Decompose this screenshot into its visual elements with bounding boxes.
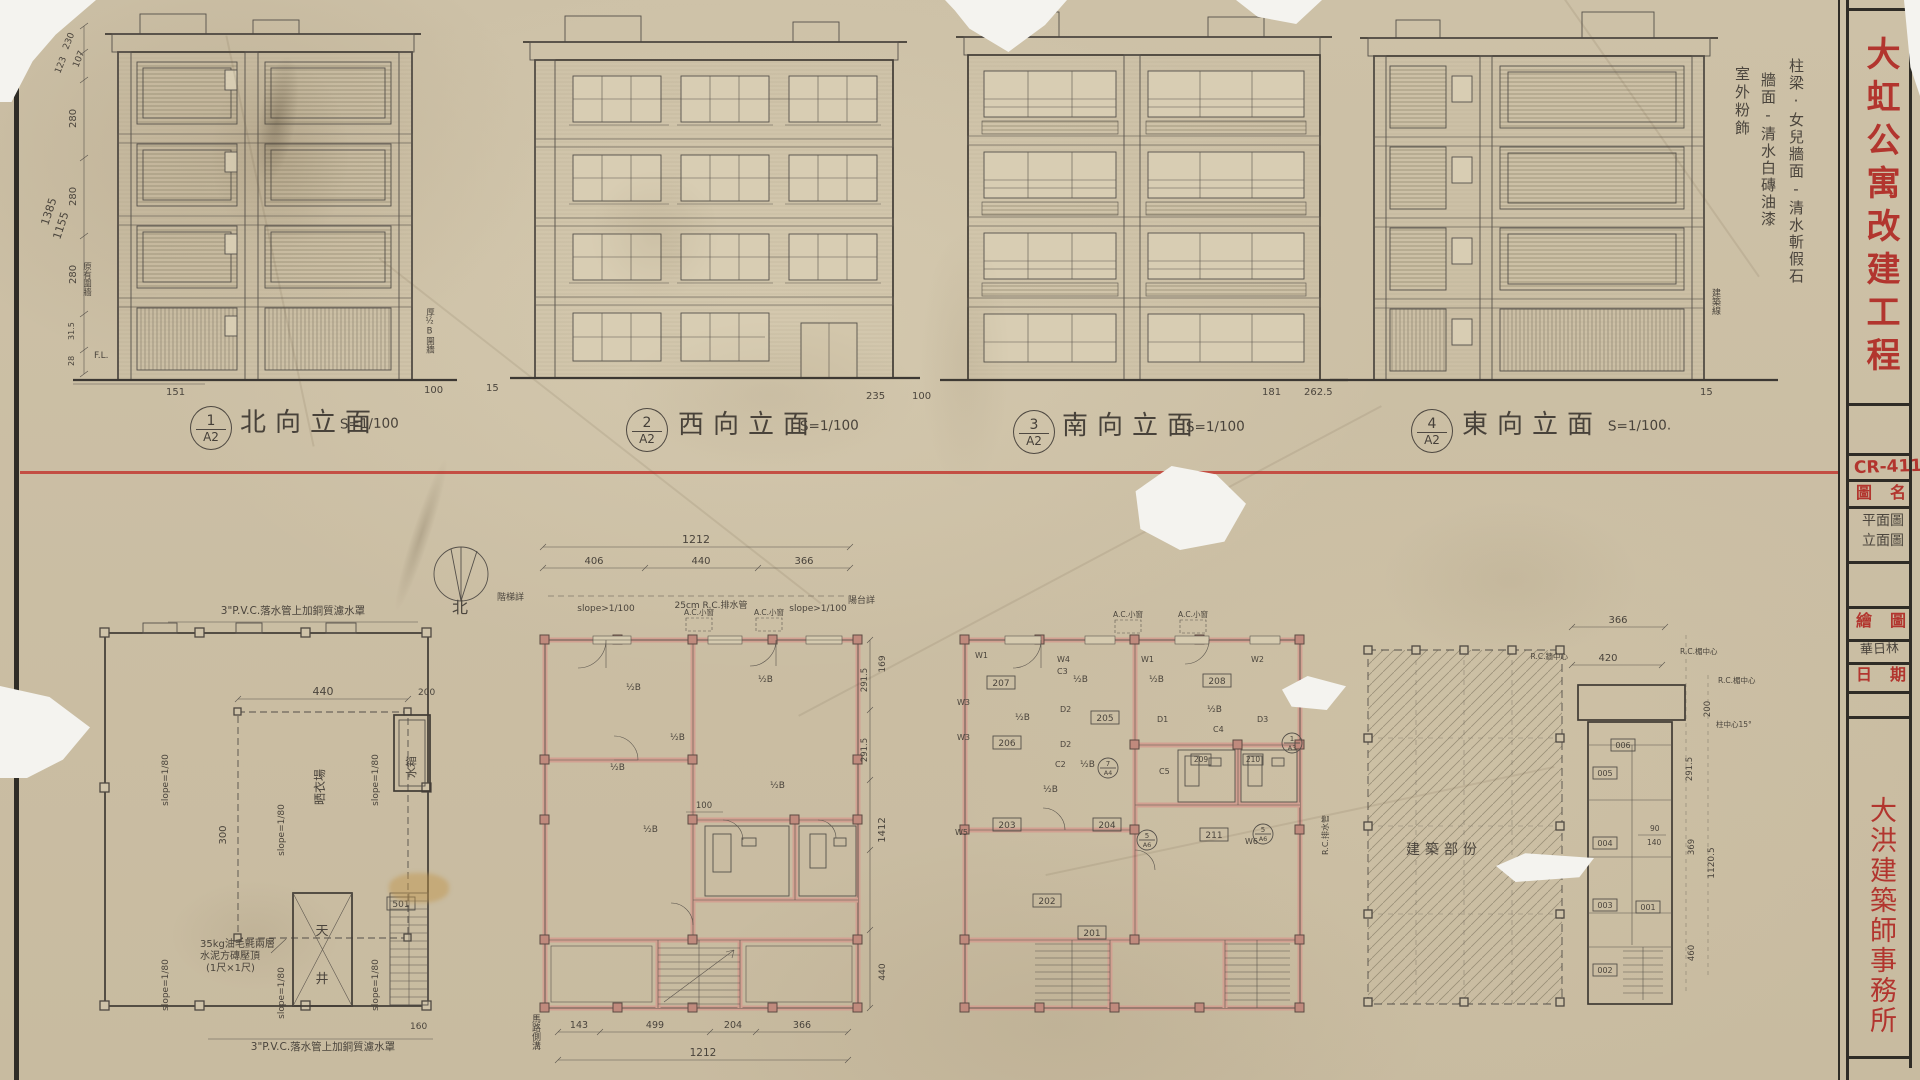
drying-area-label: 晒衣場 <box>312 769 327 805</box>
elevation-scale-east: S=1/100. <box>1608 419 1671 434</box>
slope-note-2: slope=1/80 <box>277 804 287 856</box>
fl-mark: F.L. <box>94 352 108 361</box>
elevation-title-south: 南向立面 <box>1062 413 1202 439</box>
ref-number: 4 <box>1428 417 1437 431</box>
room-004: 004 <box>1597 839 1612 848</box>
field-date: 日期 <box>1856 667 1920 683</box>
dim-15-b: 15 <box>1700 388 1713 398</box>
finish-note-wall: 牆面-清水白磚油漆 <box>1760 72 1775 272</box>
dim-235: 235 <box>866 392 885 402</box>
title-block-right-border <box>1909 8 1912 1068</box>
field-drawing-name: 圖名 <box>1856 485 1920 501</box>
mark-w6: W6 <box>1245 837 1258 846</box>
ground-plan-drawing: 366 420 R.C.牆中心 R.C.楣中心 R.C.楣中心 柱中心15° 2… <box>1350 595 1770 1075</box>
room-209: 209 <box>1194 755 1209 764</box>
lightwell-label-a: 天 <box>315 924 328 939</box>
half-brick-c6: ½B <box>1043 785 1058 795</box>
ref-1-sheet: A3 <box>1288 744 1297 752</box>
elevation-ref-4: 4 A2 <box>1411 409 1453 453</box>
mark-w3b: W3 <box>957 733 970 742</box>
room-206: 206 <box>998 739 1015 749</box>
dim-230: 230 <box>62 31 78 51</box>
dim-151: 151 <box>166 388 185 398</box>
room-210: 210 <box>1246 755 1261 764</box>
room-205: 205 <box>1096 714 1113 724</box>
tb-line <box>1846 1056 1912 1059</box>
ref-sheet: A2 <box>1417 432 1447 446</box>
cap-note-2: 水泥方磚壓頂 <box>200 949 260 962</box>
room-006: 006 <box>1615 741 1630 750</box>
dim-280a: 280 <box>68 109 79 128</box>
ref-7-sheet: A4 <box>1104 769 1113 777</box>
east-elevation-drawing <box>1330 8 1780 384</box>
gnd-dim-369: 369 <box>1687 839 1697 855</box>
dim-15-a: 15 <box>486 384 499 394</box>
cap-note-3: (1尺×1尺) <box>206 962 255 974</box>
building-portion-label: 建築部份 <box>1406 843 1482 857</box>
elevation-scale-west: S=1/100 <box>800 419 859 434</box>
dim-31-5: 31.5 <box>67 322 76 340</box>
gnd-dim-200: 200 <box>1703 701 1713 717</box>
rc-beam-center-note-2: R.C.楣中心 <box>1718 675 1756 685</box>
elevation-title-west: 西向立面 <box>678 412 818 438</box>
field-drawn-by: 繪圖 <box>1856 613 1920 629</box>
east-elevation-geometry <box>1330 12 1778 380</box>
mark-c3: C3 <box>1057 667 1068 676</box>
ref-5b-sheet: A6 <box>1259 835 1268 843</box>
room-005: 005 <box>1597 769 1612 778</box>
half-brick-4: ½B <box>670 733 685 743</box>
rc-beam-center-note-1: R.C.楣中心 <box>1680 646 1718 656</box>
slope-note-5: slope=1/80 <box>277 967 287 1019</box>
elevation-ref-2: 2 A2 <box>626 408 668 452</box>
half-brick-3: ½B <box>610 763 625 773</box>
mark-w5: W5 <box>955 828 968 837</box>
dim-181: 181 <box>1262 388 1281 398</box>
typ-dim-366: 366 <box>794 556 813 567</box>
ref-sheet: A2 <box>1019 433 1049 447</box>
typ-dim-440-right: 440 <box>878 963 888 980</box>
building-line-note: 建築線 <box>1710 288 1719 315</box>
mark-d2: D2 <box>1060 705 1071 714</box>
dim-280b: 280 <box>68 187 79 206</box>
slope-note-1: slope=1/80 <box>161 754 171 806</box>
tb-line <box>1846 716 1912 719</box>
elevation-ref-3: 3 A2 <box>1013 410 1055 454</box>
dim-28: 28 <box>67 356 76 366</box>
dim-262-5: 262.5 <box>1304 388 1333 398</box>
half-brick-c5: ½B <box>1207 705 1222 715</box>
room-002: 002 <box>1597 966 1612 975</box>
half-brick-1: ½B <box>626 683 641 693</box>
firm-name: 大洪建築師事務所 <box>1852 778 1908 1054</box>
title-block-outer-border <box>1838 0 1840 1080</box>
ref-sheet: A2 <box>632 431 662 445</box>
typ-dim-100: 100 <box>696 801 712 811</box>
roof-plan-drawing: 3"P.V.C.落水管上加銅質濾水罩 440 300 200 slope=1/8… <box>88 595 448 1065</box>
elevation-ref-1: 1 A2 <box>190 406 232 450</box>
tb-line <box>1846 403 1912 406</box>
west-elevation-geometry <box>510 16 920 378</box>
room-001: 001 <box>1640 903 1655 912</box>
roof-dim-160: 160 <box>410 1022 427 1032</box>
blueprint-sheet: 230 107 123 280 280 280 31.5 28 1385 115… <box>0 0 1920 1080</box>
mark-w4: W4 <box>1057 655 1070 664</box>
half-brick-2: ½B <box>758 675 773 685</box>
half-brick-c3: ½B <box>1015 713 1030 723</box>
typ-dim-440: 440 <box>691 556 710 567</box>
gnd-dim-366: 366 <box>1608 615 1627 626</box>
tb-line <box>1846 479 1912 482</box>
mark-w3: W3 <box>957 698 970 707</box>
room-202: 202 <box>1038 897 1055 907</box>
typ-dim-143: 143 <box>570 1020 588 1031</box>
ac-window-note-4: A.C.小窗 <box>1178 609 1208 619</box>
room-207: 207 <box>992 679 1009 689</box>
ground-plan-geometry <box>1364 624 1708 1006</box>
drawing-name-line1: 平面圖 <box>1862 514 1904 528</box>
mark-c2: C2 <box>1055 760 1066 769</box>
west-elevation-drawing <box>505 12 925 384</box>
water-tank-label: 水箱 <box>404 756 418 778</box>
cap-note-1: 35kg油毛氈兩層 <box>200 937 275 950</box>
pvc-note-top: 3"P.V.C.落水管上加銅質濾水罩 <box>221 604 365 617</box>
tb-line <box>1846 8 1912 11</box>
column-center-note: 柱中心15° <box>1716 719 1752 729</box>
ref-7-num: 7 <box>1106 760 1110 768</box>
typ-dim-499: 499 <box>646 1020 664 1031</box>
title-block-inner-border <box>1846 0 1849 1080</box>
finish-note-exterior: 室外粉飾 <box>1734 66 1749 138</box>
mark-w1: W1 <box>975 651 988 660</box>
south-elevation-drawing <box>940 8 1350 384</box>
elevation-title-east: 東向立面 <box>1462 412 1602 438</box>
typ-dim-1212-bottom: 1212 <box>690 1047 717 1059</box>
gnd-dim-420: 420 <box>1598 653 1617 664</box>
roof-dim-300: 300 <box>218 825 229 844</box>
fence-note: 厚½B圍牆 <box>425 308 434 354</box>
slope-100-note-1: slope>1/100 <box>577 604 635 614</box>
second-floor-geometry <box>960 620 1304 1012</box>
typ-dim-366-bottom: 366 <box>793 1020 811 1031</box>
old-fence-note: 原有圍牆 <box>82 262 91 296</box>
tb-line <box>1846 561 1912 564</box>
ref-sheet: A2 <box>196 429 226 443</box>
finish-note-structure: 柱梁·女兒牆面-清水斬假石 <box>1788 58 1803 298</box>
mark-c5: C5 <box>1159 767 1170 776</box>
ac-window-note-1: A.C.小窗 <box>684 607 714 617</box>
gnd-dim-460: 460 <box>1687 945 1697 961</box>
half-brick-5: ½B <box>770 781 785 791</box>
red-divider-line <box>20 471 1838 474</box>
gnd-dim-90: 90 <box>1650 824 1660 833</box>
room-208: 208 <box>1208 677 1225 687</box>
north-elevation-drawing <box>55 8 475 388</box>
roof-dim-200: 200 <box>418 688 435 698</box>
pvc-note-bottom: 3"P.V.C.落水管上加銅質濾水罩 <box>251 1040 395 1053</box>
roof-dim-440: 440 <box>313 685 334 698</box>
left-dimension-chain: 230 107 123 280 280 280 31.5 28 1385 115… <box>18 18 103 386</box>
tb-line <box>1846 691 1912 694</box>
gnd-dim-11205: 1120.5 <box>1707 847 1717 879</box>
typical-floor-plan-drawing: 1212 406 440 366 slope>1/100 25cm R.C.排水… <box>518 530 918 1075</box>
dim-123: 123 <box>54 55 70 75</box>
roof-plan-geometry <box>100 622 433 1039</box>
ac-window-note-3: A.C.小窗 <box>1113 609 1143 619</box>
elevation-scale-north: S=1/100 <box>340 417 399 432</box>
roof-stair-number: 501 <box>392 900 409 910</box>
project-title: 大虹公寓改建工程 <box>1851 22 1909 394</box>
dim-280c: 280 <box>68 265 79 284</box>
typ-dim-2915-b: 291.5 <box>860 738 870 762</box>
second-floor-plan-drawing: 207 205 208 206 203 204 209 210 211 202 … <box>945 600 1345 1080</box>
typ-dim-406: 406 <box>584 556 603 567</box>
typ-dim-1412: 1412 <box>877 817 888 842</box>
half-brick-c2: ½B <box>1149 675 1164 685</box>
drawn-by-name: 華日林 <box>1860 642 1900 657</box>
ac-window-note-2: A.C.小窗 <box>754 607 784 617</box>
ref-number: 3 <box>1030 418 1039 432</box>
slope-100-note-2: slope>1/100 <box>789 604 847 614</box>
ref-number: 1 <box>207 414 216 428</box>
room-003: 003 <box>1597 901 1612 910</box>
torn-edge-left <box>0 686 90 778</box>
compass-north-label: 北 <box>452 600 468 616</box>
torn-hole-right-middle <box>1126 466 1246 550</box>
elevation-scale-south: S=1/100 <box>1186 420 1245 435</box>
ref-5a-num: 5 <box>1145 832 1149 840</box>
tb-line <box>1846 506 1912 509</box>
ref-5a-sheet: A6 <box>1143 841 1152 849</box>
drawing-number: CR-411 <box>1854 458 1920 477</box>
dim-100-b: 100 <box>912 392 931 402</box>
mark-w2: W2 <box>1251 655 1264 664</box>
slope-note-4: slope=1/80 <box>161 959 171 1011</box>
room-201: 201 <box>1083 929 1100 939</box>
north-elevation-geometry <box>73 14 457 384</box>
half-brick-c4: ½B <box>1080 760 1095 770</box>
room-203: 203 <box>998 821 1015 831</box>
mark-d2b: D2 <box>1060 740 1071 749</box>
tb-line <box>1846 606 1912 609</box>
half-brick-c1: ½B <box>1073 675 1088 685</box>
mark-c4: C4 <box>1213 725 1224 734</box>
south-elevation-geometry <box>940 12 1348 380</box>
dim-107: 107 <box>72 49 88 69</box>
typ-dim-1212-top: 1212 <box>682 533 710 546</box>
rc-wall-center-note: R.C.牆中心 <box>1531 651 1569 661</box>
gnd-dim-140: 140 <box>1647 838 1662 847</box>
slope-note-6: slope=1/80 <box>371 959 381 1011</box>
half-brick-6: ½B <box>643 825 658 835</box>
rc-drain-note: R.C.排水管 <box>1320 815 1330 855</box>
ref-1-num: 1 <box>1290 735 1294 743</box>
drawing-name-line2: 立面圖 <box>1862 534 1904 548</box>
lightwell-label-b: 井 <box>315 972 328 987</box>
mark-d1: D1 <box>1157 715 1168 724</box>
gnd-dim-2915: 291.5 <box>1685 757 1695 781</box>
mark-w1b: W1 <box>1141 655 1154 664</box>
ref-number: 2 <box>643 416 652 430</box>
typ-dim-204: 204 <box>724 1020 742 1031</box>
dim-100-a: 100 <box>424 386 443 396</box>
room-204: 204 <box>1098 821 1115 831</box>
mark-d3: D3 <box>1257 715 1268 724</box>
slope-note-3: slope=1/80 <box>371 754 381 806</box>
